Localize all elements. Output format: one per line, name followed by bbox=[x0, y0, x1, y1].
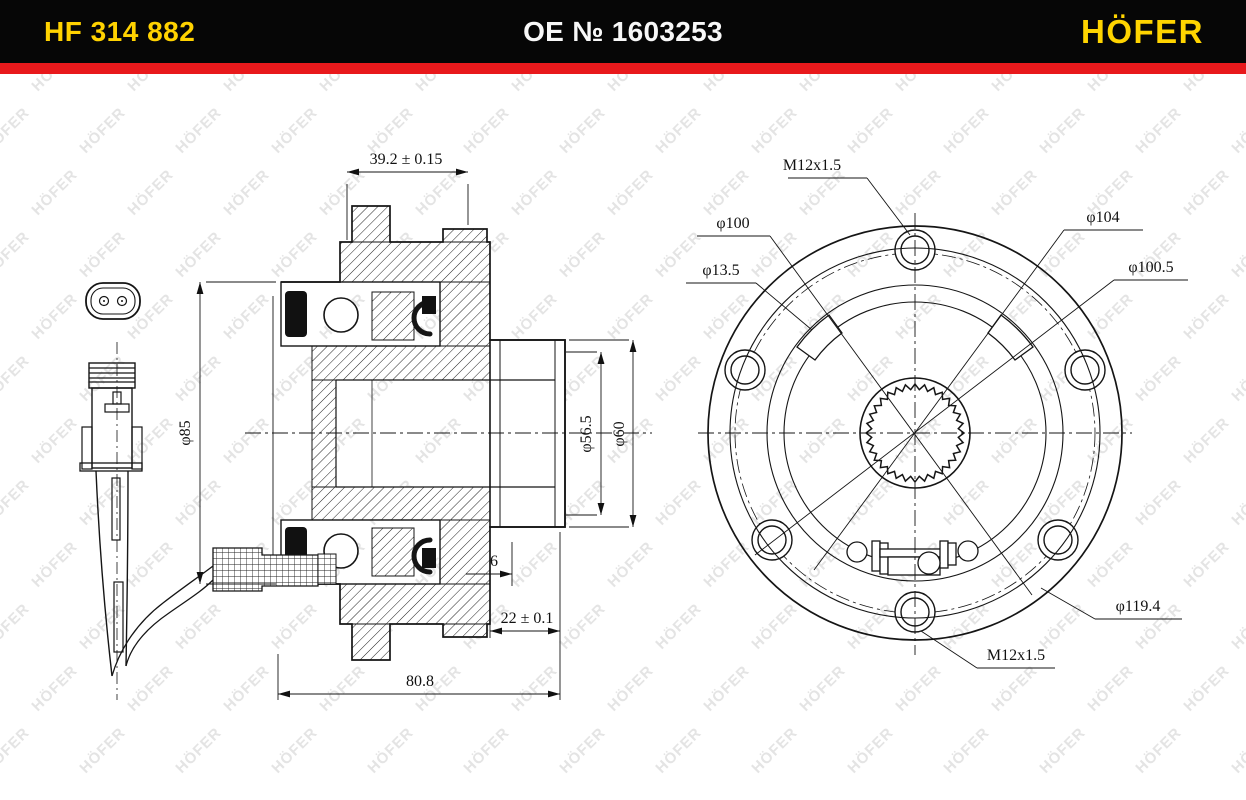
dim-dia13-5: φ13.5 bbox=[702, 262, 739, 279]
technical-drawing: 39.2 ± 0.15 φ85 φ56.5 φ60 6 22 ± 0.1 80.… bbox=[0, 0, 1246, 800]
dim-thread-bottom: M12x1.5 bbox=[987, 647, 1045, 664]
pilot-flange bbox=[490, 340, 565, 527]
abs-sensor-head bbox=[213, 548, 336, 591]
header-bar: HF 314 882 OE № 1603253 HÖFER bbox=[0, 0, 1246, 63]
dim-dia100: φ100 bbox=[716, 215, 749, 232]
bearing-top-row bbox=[285, 291, 436, 340]
cross-section-view: 39.2 ± 0.15 φ85 φ56.5 φ60 6 22 ± 0.1 80.… bbox=[80, 151, 652, 700]
dim-dia60: φ60 bbox=[611, 421, 628, 446]
abs-sensor-bracket bbox=[872, 541, 956, 575]
dim-top-width: 39.2 ± 0.15 bbox=[370, 151, 443, 168]
dim-depth22: 22 ± 0.1 bbox=[501, 610, 554, 627]
dim-step6: 6 bbox=[490, 553, 498, 570]
dim-thread-top: M12x1.5 bbox=[783, 157, 841, 174]
connector-face bbox=[86, 283, 140, 319]
dim-dia100-5: φ100.5 bbox=[1128, 259, 1173, 276]
oe-number: OE № 1603253 bbox=[0, 16, 1246, 48]
red-stripe bbox=[0, 63, 1246, 74]
dim-dia119-4: φ119.4 bbox=[1116, 598, 1161, 615]
sensor-plug bbox=[80, 342, 142, 700]
dim-dia85: φ85 bbox=[177, 420, 194, 445]
dim-dia56-5: φ56.5 bbox=[578, 415, 595, 452]
front-view: M12x1.5 φ100 φ13.5 φ104 φ100.5 φ119.4 M1… bbox=[686, 157, 1188, 668]
small-hole-left bbox=[847, 542, 867, 562]
small-hole-right bbox=[958, 541, 978, 561]
dim-total-width: 80.8 bbox=[406, 673, 434, 690]
leaders-right bbox=[686, 178, 1188, 668]
dim-dia104: φ104 bbox=[1086, 209, 1119, 226]
brand-logo: HÖFER bbox=[1081, 13, 1204, 51]
